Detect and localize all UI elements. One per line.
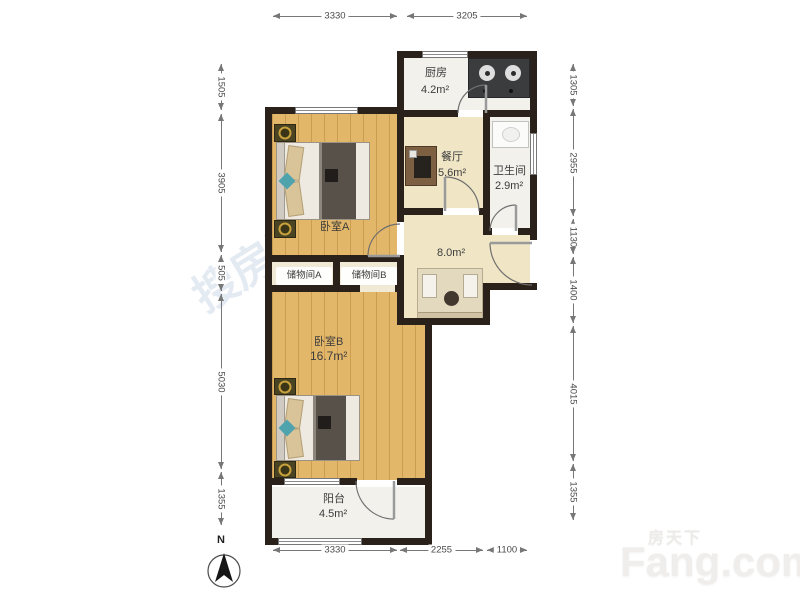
compass-north-label: N <box>217 534 225 546</box>
dim-right-3: 1130 <box>573 219 574 254</box>
kitchen-area: 4.2m² <box>421 84 449 97</box>
door-arc <box>368 224 400 256</box>
balcony-label: 阳台 <box>323 493 345 506</box>
bathroom-label: 卫生间 <box>493 165 526 178</box>
bedroom-a-label: 卧室A <box>320 221 349 234</box>
door-arcs-layer <box>0 0 800 600</box>
dim-label: 3330 <box>321 545 348 556</box>
door-arc <box>490 205 516 231</box>
dim-label: 1130 <box>568 223 579 249</box>
dim-right-2: 2955 <box>573 109 574 216</box>
kitchen-label: 厨房 <box>425 67 447 80</box>
door-arc <box>356 481 394 519</box>
dim-top-1: 3330 <box>273 16 397 17</box>
dim-left-2: 3905 <box>221 114 222 252</box>
bathroom-area: 2.9m² <box>495 180 523 193</box>
dim-label: 1400 <box>568 276 579 303</box>
hall-area: 8.0m² <box>437 247 465 260</box>
floor-plan: 搜房网 <box>0 0 800 600</box>
dim-left-5: 1355 <box>221 472 222 525</box>
storage-a-label: 储物间A <box>276 267 332 285</box>
storage-b-label: 储物间B <box>341 267 397 285</box>
dim-label: 5030 <box>216 368 227 395</box>
bedroom-b-label: 卧室B <box>314 336 343 349</box>
dim-label: 3205 <box>453 11 480 22</box>
door-arc <box>458 85 486 113</box>
dim-label: 2955 <box>568 149 579 176</box>
dim-label: 1100 <box>494 545 520 556</box>
dim-label: 2255 <box>428 545 455 556</box>
dining-area: 5.6m² <box>438 167 466 180</box>
dim-label: 4015 <box>568 380 579 407</box>
compass-icon <box>208 553 240 587</box>
dim-left-1: 1505 <box>221 64 222 110</box>
dim-label: 1305 <box>568 71 579 98</box>
dim-label: 3905 <box>216 169 227 196</box>
bedroom-b-area: 16.7m² <box>310 350 347 363</box>
balcony-area: 4.5m² <box>319 508 347 521</box>
dim-bottom-2: 2255 <box>400 550 483 551</box>
dim-label: 1355 <box>216 485 227 512</box>
dim-top-2: 3205 <box>407 16 527 17</box>
dim-label: 3330 <box>321 11 348 22</box>
brand-watermark-en: Fang.com <box>620 538 800 586</box>
dim-right-6: 1355 <box>573 464 574 520</box>
door-arc <box>490 243 532 285</box>
dim-right-4: 1400 <box>573 257 574 323</box>
dim-right-5: 4015 <box>573 326 574 461</box>
dim-label: 1505 <box>216 73 227 100</box>
dim-label: 505 <box>216 262 227 284</box>
dim-bottom-3: 1100 <box>487 550 527 551</box>
dim-bottom-1: 3330 <box>273 550 397 551</box>
dim-label: 1355 <box>568 478 579 505</box>
dim-left-3: 505 <box>221 255 222 291</box>
dim-right-1: 1305 <box>573 64 574 106</box>
dim-left-4: 5030 <box>221 294 222 469</box>
dining-label: 餐厅 <box>441 151 463 164</box>
door-arc <box>445 177 479 211</box>
